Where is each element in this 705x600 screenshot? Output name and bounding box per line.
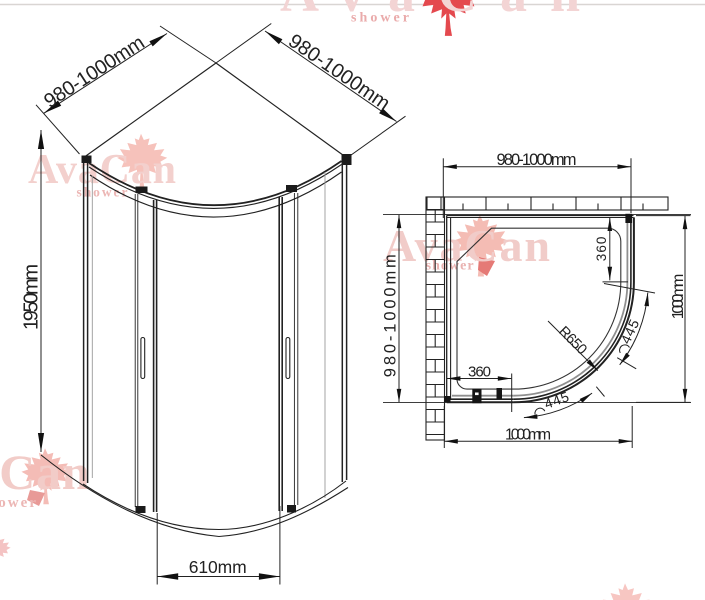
svg-text:1950mm: 1950mm: [21, 264, 43, 330]
svg-text:1000mm: 1000mm: [670, 274, 687, 320]
svg-text:980-1000mm: 980-1000mm: [497, 151, 577, 169]
svg-text:shower: shower: [0, 495, 36, 511]
svg-text:610mm: 610mm: [189, 557, 247, 577]
svg-text:AvaCan: AvaCan: [0, 444, 90, 500]
svg-text:360: 360: [468, 364, 491, 381]
svg-text:shower: shower: [426, 259, 474, 274]
svg-text:360: 360: [594, 237, 609, 262]
svg-text:1000mm: 1000mm: [505, 427, 551, 444]
svg-text:980-1000mm: 980-1000mm: [382, 254, 400, 377]
